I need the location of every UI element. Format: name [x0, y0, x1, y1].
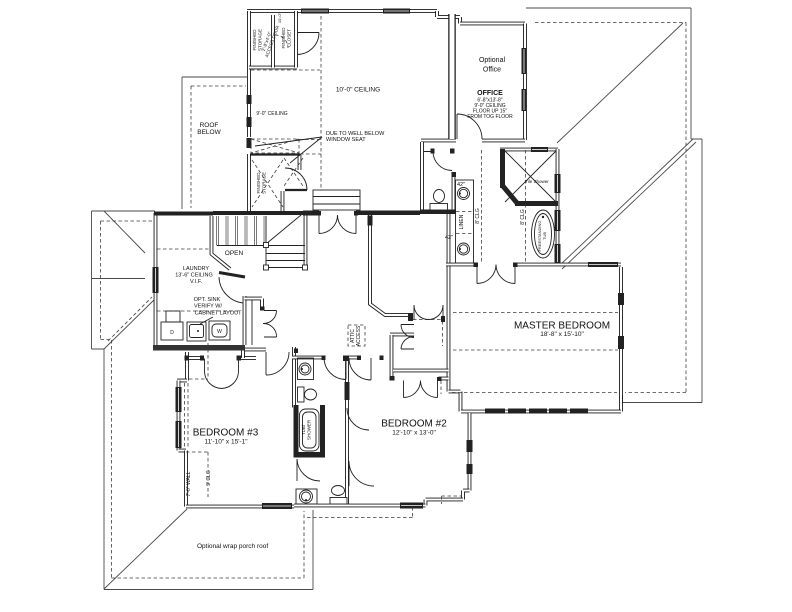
svg-text:8' CLG: 8' CLG	[475, 208, 481, 224]
svg-text:12'-10" x 13'-0": 12'-10" x 13'-0"	[392, 430, 436, 437]
svg-text:STORAGE: STORAGE	[262, 172, 267, 194]
svg-text:V.I.F.: V.I.F.	[190, 279, 202, 285]
svg-text:CABINET LAYOUT: CABINET LAYOUT	[195, 311, 243, 317]
svg-text:8' CLG: 8' CLG	[520, 209, 526, 225]
svg-text:SHOWER: SHOWER	[307, 419, 312, 440]
svg-text:FINISHED: FINISHED	[256, 172, 261, 194]
svg-text:Office: Office	[483, 67, 501, 74]
svg-text:TUB/: TUB/	[301, 424, 306, 435]
svg-text:OPT. SINK: OPT. SINK	[194, 297, 221, 303]
svg-text:BEDROOM #2: BEDROOM #2	[381, 419, 447, 430]
svg-text:FROM TOG FLOOR: FROM TOG FLOOR	[467, 114, 513, 120]
svg-text:FINISHED: FINISHED	[252, 29, 257, 51]
svg-text:42": 42"	[445, 235, 453, 241]
svg-text:Optional: Optional	[479, 57, 506, 64]
svg-text:9' CLG: 9' CLG	[206, 470, 212, 486]
svg-text:OFFICE: OFFICE	[477, 90, 503, 97]
svg-text:10'-0" CEILING: 10'-0" CEILING	[336, 87, 380, 94]
svg-text:D: D	[170, 330, 174, 336]
svg-text:OPEN: OPEN	[225, 250, 244, 257]
svg-text:13'-6" CEILING: 13'-6" CEILING	[175, 273, 213, 279]
svg-text:Optional wrap porch roof: Optional wrap porch roof	[197, 543, 268, 550]
svg-text:TUB: TUB	[542, 232, 547, 240]
svg-text:BEDROOM #3: BEDROOM #3	[193, 428, 259, 439]
svg-text:CLOSET: CLOSET	[287, 29, 292, 47]
svg-text:MASTER BEDROOM: MASTER BEDROOM	[514, 321, 610, 332]
svg-text:7'-0" WALL: 7'-0" WALL	[186, 471, 192, 496]
svg-text:FINISHED: FINISHED	[281, 27, 286, 49]
svg-text:W: W	[217, 329, 222, 335]
svg-text:42": 42"	[457, 182, 465, 188]
svg-text:BELOW: BELOW	[197, 129, 221, 136]
svg-text:18'-8" x 15'-10": 18'-8" x 15'-10"	[540, 331, 584, 338]
svg-text:LINEN: LINEN	[459, 214, 465, 229]
svg-text:VERIFY W/: VERIFY W/	[194, 304, 222, 310]
svg-text:Tile Shower: Tile Shower	[525, 179, 549, 184]
svg-text:ACCESS: ACCESS	[356, 325, 362, 346]
svg-text:11'-10" x 15'-1": 11'-10" x 15'-1"	[204, 439, 248, 446]
svg-text:ROOF: ROOF	[200, 122, 219, 129]
svg-text:LAUNDRY: LAUNDRY	[183, 266, 210, 272]
svg-text:9'-0" CEILING: 9'-0" CEILING	[256, 111, 287, 117]
svg-text:10'-0": 10'-0"	[277, 12, 282, 23]
svg-text:WINDOW SEAT: WINDOW SEAT	[326, 137, 366, 143]
